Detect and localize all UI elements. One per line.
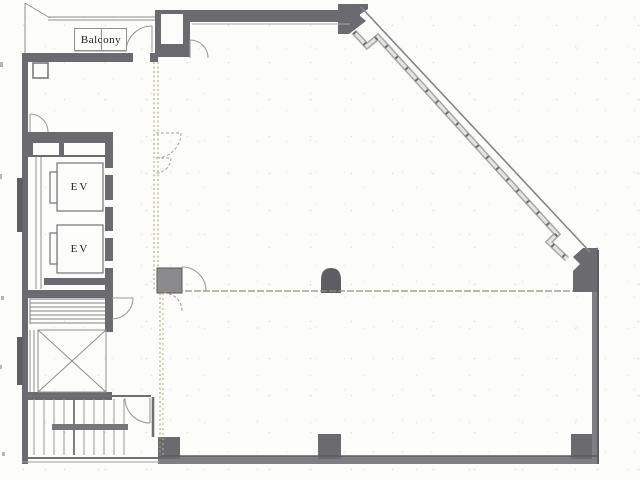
stairwell — [24, 396, 158, 458]
diagonal-window-wall — [354, 7, 590, 259]
balcony-label: Balcony — [72, 28, 130, 51]
elevator-2-label: EV — [57, 225, 103, 273]
stair-door-arc — [125, 398, 150, 423]
lower-door-arc — [164, 293, 182, 311]
dashed-door-arc-large — [156, 133, 181, 158]
louver-hatch — [30, 298, 105, 324]
entry-door-arc — [190, 40, 208, 58]
shaft-door-arc — [112, 298, 133, 319]
lobby-door-arc — [182, 267, 206, 291]
room-door-arc — [30, 114, 48, 132]
duct-box — [33, 63, 48, 78]
scan-artifacts — [0, 62, 5, 456]
wall-edges — [158, 250, 599, 464]
partition-lines — [154, 62, 573, 456]
stair-landing-rail — [52, 424, 128, 430]
x-void — [38, 330, 106, 392]
floor-plan-canvas: Balcony EV EV — [0, 0, 640, 480]
elevator-1-label: EV — [57, 163, 103, 211]
